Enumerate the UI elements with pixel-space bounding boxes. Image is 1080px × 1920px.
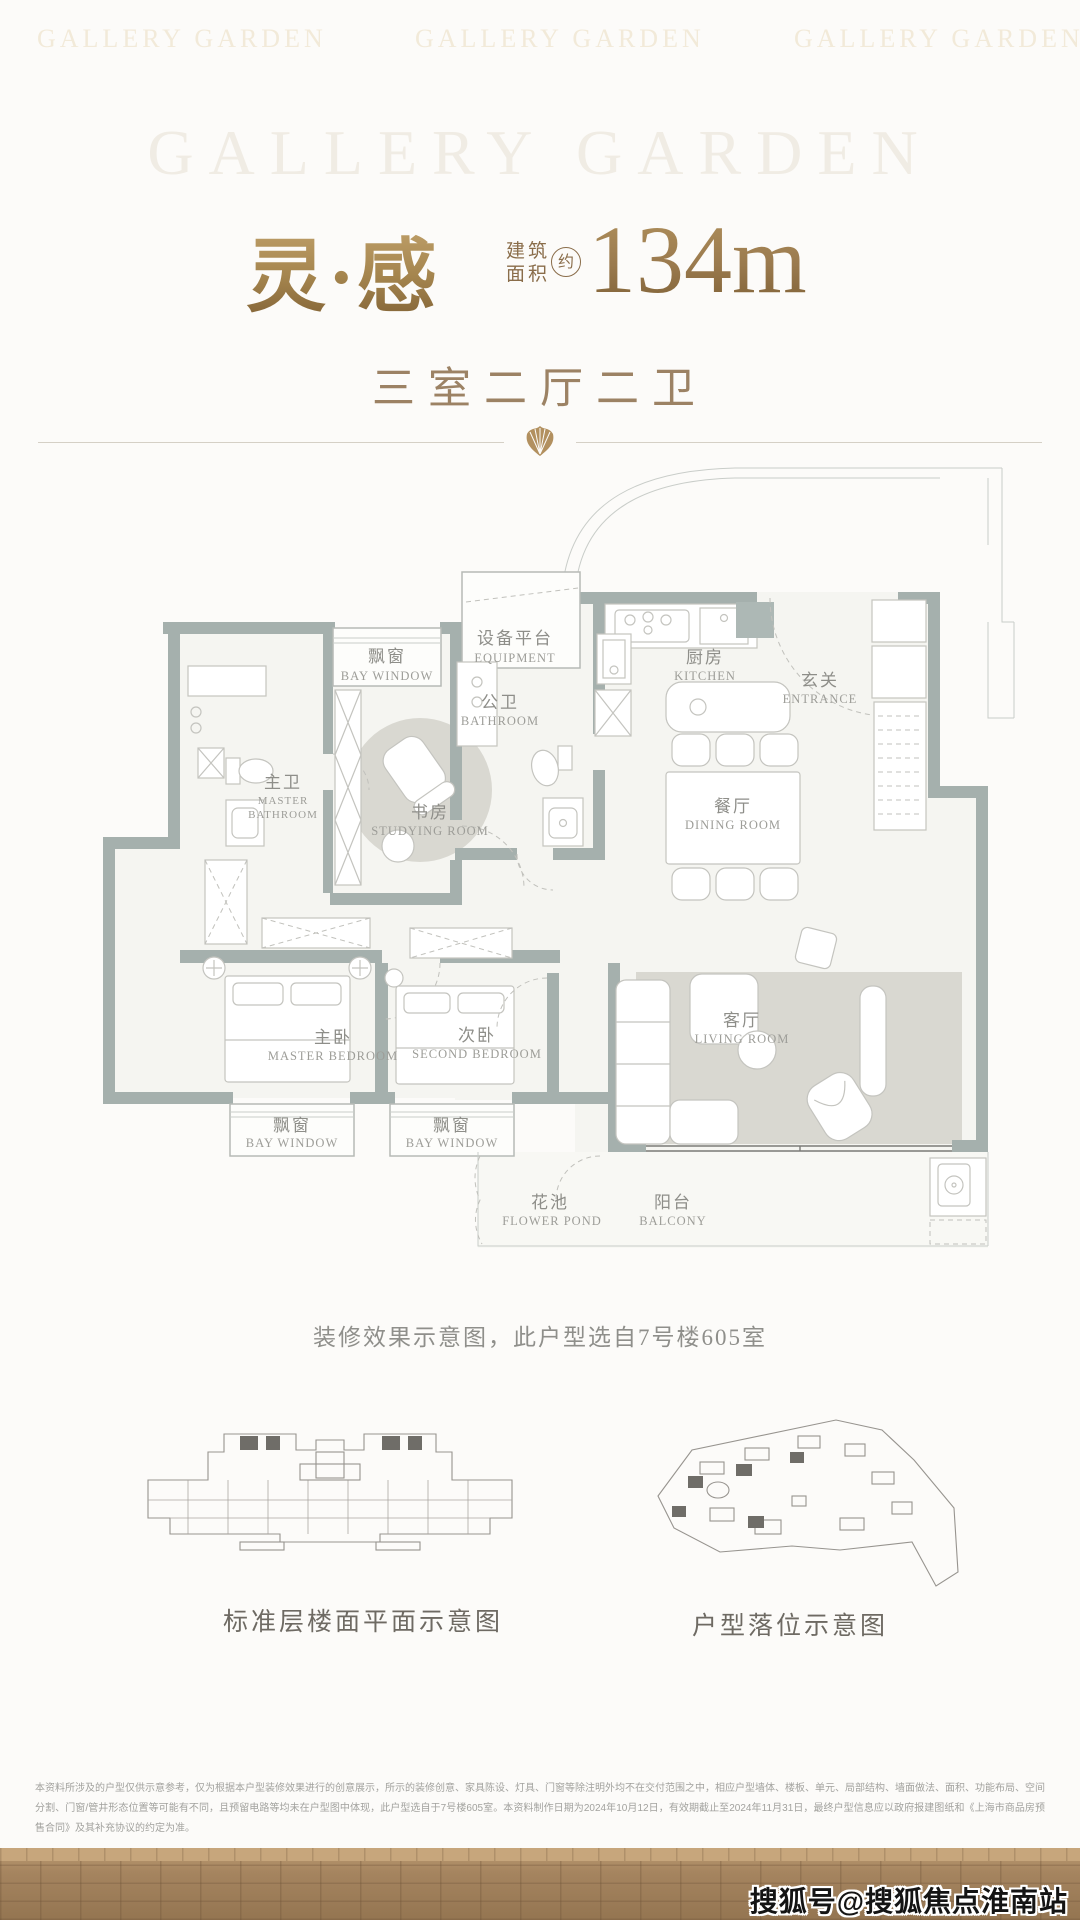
studying-room-en: STUDYING ROOM: [371, 824, 489, 838]
site-location-caption: 户型落位示意图: [590, 1606, 990, 1642]
area-approx-badge: 约: [551, 247, 581, 277]
layout-summary: 三室二厅二卫: [0, 354, 1080, 416]
entrance-en: ENTRANCE: [783, 692, 858, 706]
kitchen-en: KITCHEN: [674, 669, 736, 683]
area-number: 134m: [588, 206, 807, 313]
equipment-zh: 设备平台: [477, 629, 553, 648]
bathroom-zh: 公卫: [481, 693, 519, 712]
floorplan: 飘窗 BAY WINDOW 设备平台 EQUIPMENT 厨房 KITCHEN …: [0, 455, 1080, 1265]
footer-logo-right: GALLERY GARDEN: [794, 24, 1054, 54]
balcony-zh: 阳台: [654, 1193, 692, 1212]
flower-pond-en: FLOWER POND: [502, 1214, 602, 1228]
kitchen-corner-cabinet: [736, 602, 774, 638]
footer-logo-center: GALLERY GARDEN: [415, 24, 675, 54]
master-bedroom-en: MASTER BEDROOM: [268, 1049, 398, 1063]
bench: [860, 986, 886, 1096]
bay-window-top-zh: 飘窗: [368, 647, 406, 666]
divider-line-right: [576, 442, 1042, 443]
bay-window-mid-zh: 飘窗: [433, 1116, 471, 1135]
bay-window-mid-en: BAY WINDOW: [406, 1136, 499, 1150]
site-location-diagram: [540, 1400, 970, 1600]
living-room-en: LIVING ROOM: [695, 1032, 790, 1046]
equipment-en: EQUIPMENT: [474, 651, 555, 665]
floorplan-caption: 装修效果示意图，此户型选自7号楼605室: [0, 1318, 1080, 1352]
kitchen-zh: 厨房: [686, 648, 724, 667]
bathroom-en: BATHROOM: [461, 714, 539, 728]
brand-watermark: GALLERY GARDEN: [0, 116, 1080, 190]
studying-room-zh: 书房: [411, 803, 449, 822]
poster-page: GALLERY GARDEN 灵·感 建筑 面积 约 134m2 三室二厅二卫: [0, 0, 1080, 1920]
kitchen-island: [666, 682, 790, 732]
area-value: 134m2: [588, 212, 832, 308]
area-label-line1: 建筑: [506, 240, 550, 263]
standard-floor-diagram: [120, 1400, 540, 1600]
living-room-zh: 客厅: [723, 1011, 761, 1030]
area-superscript: 2: [810, 205, 832, 254]
dining-room-zh: 餐厅: [714, 797, 752, 816]
bay-window-top-en: BAY WINDOW: [341, 669, 434, 683]
dining-room-en: DINING ROOM: [685, 818, 781, 832]
master-bathroom-zh: 主卫: [264, 773, 302, 792]
second-bedroom-en: SECOND BEDROOM: [412, 1047, 542, 1061]
footer-brick-top-row: [0, 1848, 1080, 1861]
sohu-watermark: 搜狐号@搜狐焦点淮南站: [750, 1880, 1068, 1920]
disclaimer-text: 本资料所涉及的户型仅供示意参考，仅为根据本户型装修效果进行的创意展示，所示的装修…: [35, 1779, 1045, 1839]
layout-name-title: 灵·感: [246, 212, 439, 328]
standard-floor-caption: 标准层楼面平面示意图: [163, 1602, 563, 1638]
bay-window-left-en: BAY WINDOW: [246, 1136, 339, 1150]
dining-set: [666, 734, 800, 900]
master-bathroom-en2: BATHROOM: [248, 809, 318, 821]
second-bedroom-zh: 次卧: [458, 1026, 496, 1045]
area-label: 建筑 面积: [506, 240, 550, 286]
divider-line-left: [38, 442, 504, 443]
balcony-en: BALCONY: [639, 1214, 706, 1228]
area-label-line2: 面积: [506, 263, 550, 286]
bay-window-left-zh: 飘窗: [273, 1116, 311, 1135]
master-bathroom-en1: MASTER: [258, 795, 309, 807]
master-bedroom-zh: 主卧: [314, 1028, 352, 1047]
footer-logo-left: GALLERY GARDEN: [37, 24, 297, 54]
sofa: [616, 980, 670, 1144]
entrance-zh: 玄关: [801, 671, 839, 690]
flower-pond-zh: 花池: [531, 1193, 569, 1212]
